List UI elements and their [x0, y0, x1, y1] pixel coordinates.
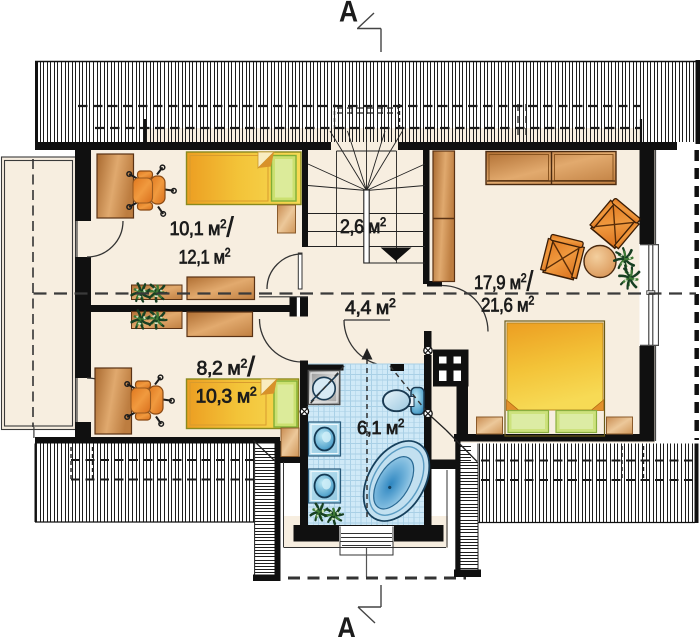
svg-text:21,6 м2: 21,6 м2	[481, 293, 534, 316]
svg-text:6,1 м2: 6,1 м2	[357, 416, 404, 438]
svg-text:A: A	[337, 612, 356, 637]
svg-text:4,4 м2: 4,4 м2	[345, 296, 396, 319]
svg-text:10,3 м2: 10,3 м2	[196, 384, 257, 407]
svg-text:A: A	[339, 0, 358, 29]
svg-text:2,6 м2: 2,6 м2	[340, 215, 386, 238]
svg-text:12,1 м2: 12,1 м2	[179, 245, 231, 268]
